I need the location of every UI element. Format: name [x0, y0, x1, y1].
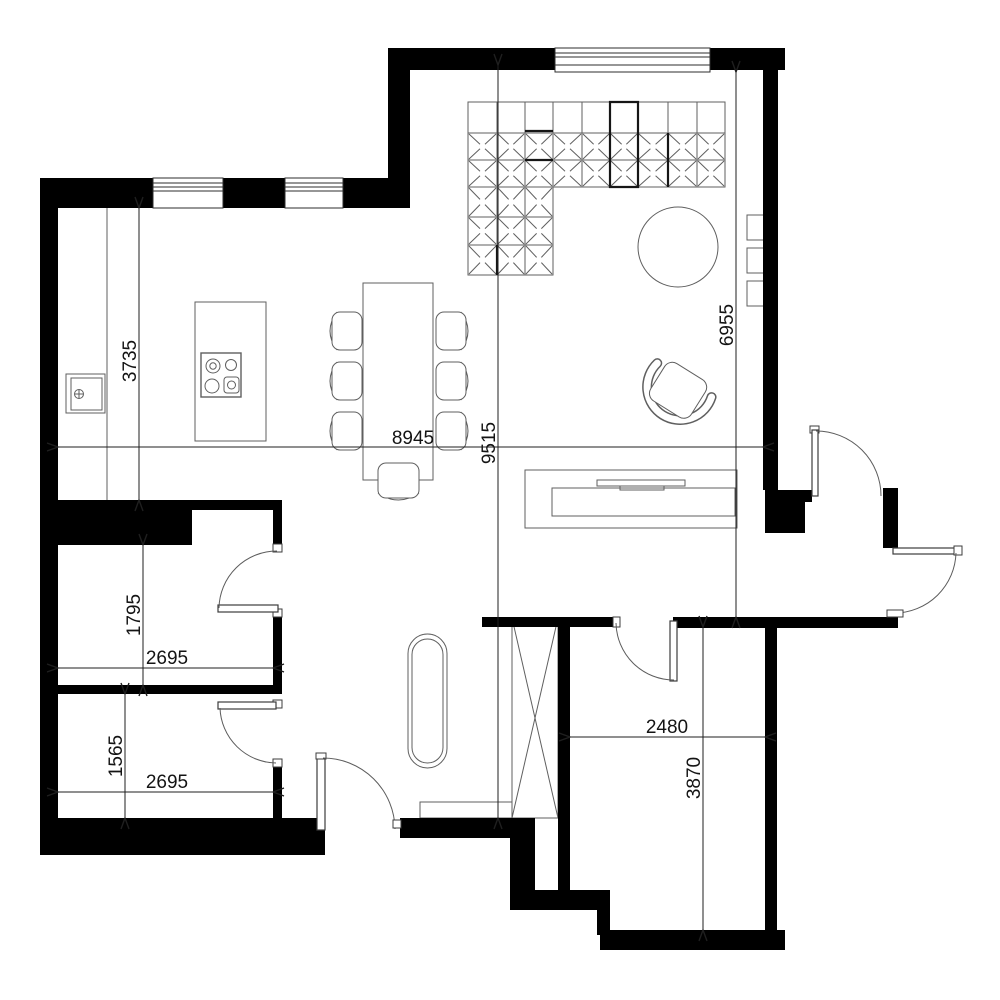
bottom-room-door [613, 617, 677, 681]
bathtub [408, 634, 447, 768]
chair [436, 412, 468, 450]
dim-label-kitchen-depth: 3735 [120, 340, 141, 382]
dim-label-room1-width: 2695 [146, 648, 188, 669]
bathroom-shelf [420, 802, 513, 818]
entrance-door [887, 546, 962, 617]
chair [436, 312, 468, 350]
dim-label-room2-width: 2695 [146, 772, 188, 793]
coffee-table [638, 207, 718, 287]
shaft [512, 618, 558, 818]
cooktop-icon [201, 353, 241, 397]
chair [436, 362, 468, 400]
room1-door [218, 544, 282, 617]
radiator-units [747, 215, 765, 306]
floor-plan-drawing: 3735 8945 9515 6955 1795 2695 1565 2695 … [0, 0, 1000, 1000]
chair [330, 412, 362, 450]
kitchen-window-2 [285, 178, 343, 208]
dim-label-living-width: 8945 [392, 428, 434, 449]
entry-inner-door [810, 426, 881, 496]
floor-plan-page: 3735 8945 9515 6955 1795 2695 1565 2695 … [0, 0, 1000, 1000]
kitchen-sink [66, 374, 105, 413]
chair [330, 362, 362, 400]
dim-label-bottom-room-width: 2480 [646, 717, 688, 738]
tv-stand [525, 470, 737, 528]
dim-label-overall-height: 9515 [479, 422, 500, 464]
bathroom-door [316, 753, 401, 830]
chair [330, 312, 362, 350]
dim-label-room1-height: 1795 [124, 594, 145, 636]
living-room-window [555, 48, 710, 72]
dim-label-bottom-room-height: 3870 [684, 757, 705, 799]
furniture-layer [66, 102, 765, 818]
dim-label-room2-height: 1565 [106, 735, 127, 777]
dining-table [363, 283, 433, 480]
chair [378, 463, 419, 500]
dim-label-living-height-right: 6955 [717, 304, 738, 346]
armchair [635, 354, 718, 432]
room2-door [218, 700, 282, 767]
kitchen-window-1 [153, 178, 223, 208]
kitchen-island [195, 302, 266, 441]
